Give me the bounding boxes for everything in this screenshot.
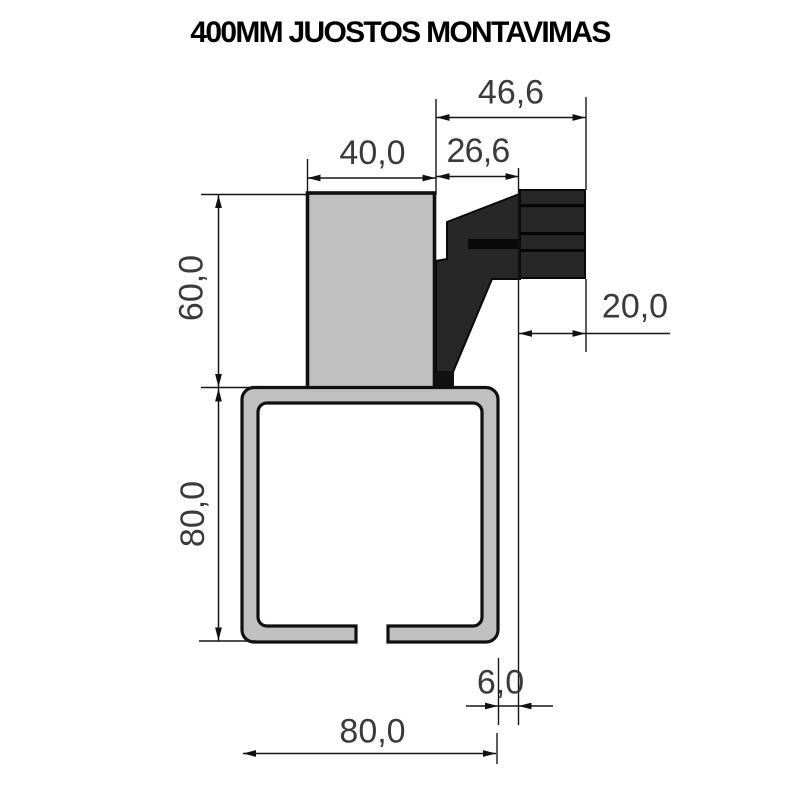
svg-text:80,0: 80,0 — [339, 713, 405, 751]
svg-text:6,0: 6,0 — [477, 664, 524, 702]
svg-text:400MM JUOSTOS MONTAVIMAS: 400MM JUOSTOS MONTAVIMAS — [190, 16, 610, 49]
svg-text:40,0: 40,0 — [339, 134, 405, 172]
svg-text:20,0: 20,0 — [602, 288, 668, 326]
svg-text:60,0: 60,0 — [173, 255, 211, 321]
svg-text:80,0: 80,0 — [174, 481, 212, 547]
svg-text:46,6: 46,6 — [478, 74, 544, 112]
svg-text:26,6: 26,6 — [447, 132, 510, 170]
